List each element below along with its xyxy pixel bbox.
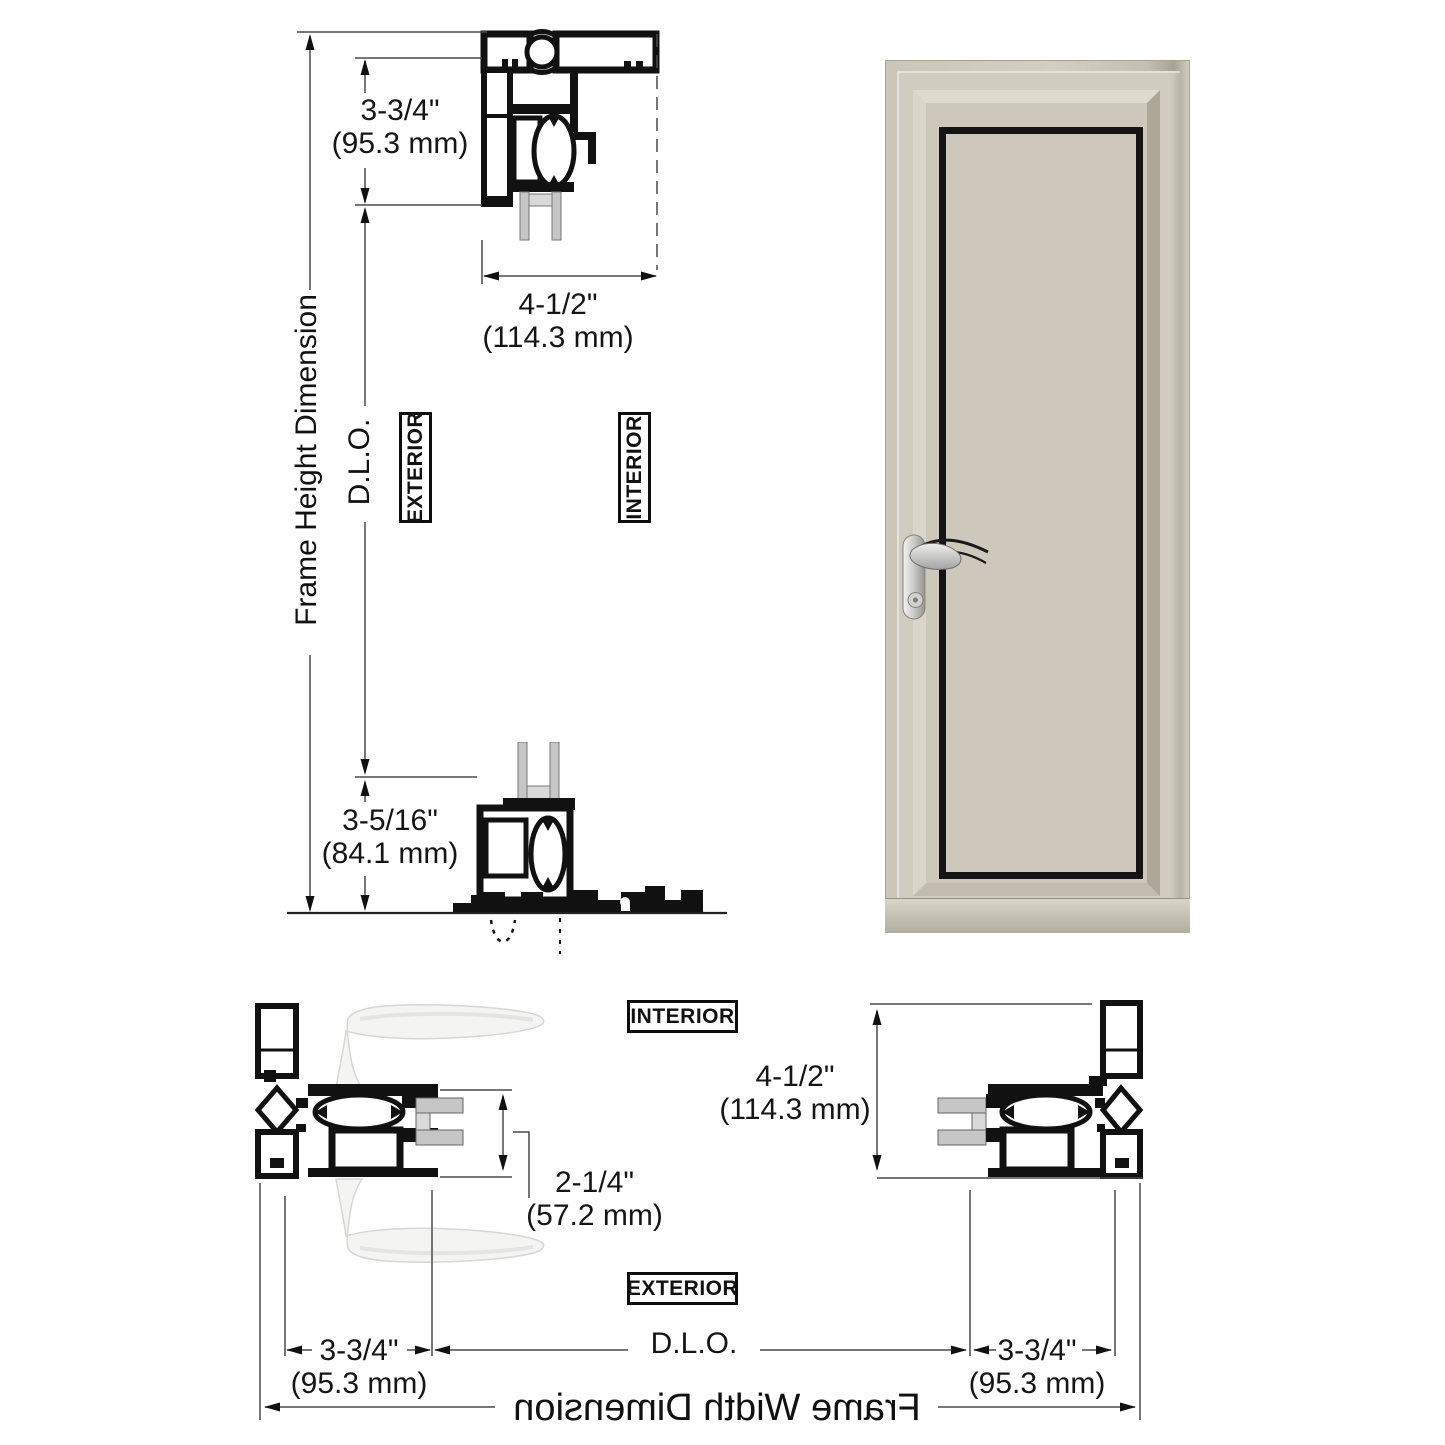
lock-jamb-dimension: 3-3/4" (95.3 mm) [279,1334,439,1400]
dlo-horizontal-label: D.L.O. [634,1327,754,1360]
interior-bottom-badge: INTERIOR [627,1000,738,1033]
hinge-jamb-dimension: 3-3/4" (95.3 mm) [957,1334,1117,1400]
sill-height-dimension: 3-5/16" (84.1 mm) [310,804,470,870]
head-height-dimension: 3-3/4" (95.3 mm) [320,94,480,160]
drawing-sheet: Frame Height Dimension D.L.O. EXTERIOR I… [0,0,1445,1445]
interior-top-badge: INTERIOR [618,412,651,523]
glazing-thickness-dimension: 2-1/4" (57.2 mm) [512,1166,677,1232]
frame-height-label: Frame Height Dimension [290,290,322,630]
exterior-top-badge: EXTERIOR [399,412,432,523]
dimension-lines-overlay [0,0,1445,1445]
frame-depth-side-dimension: 4-1/2" (114.3 mm) [715,1060,875,1126]
frame-depth-top-dimension: 4-1/2" (114.3 mm) [478,288,638,354]
exterior-bottom-badge: EXTERIOR [627,1272,738,1305]
frame-width-label: Frame Width Dimension [497,1387,937,1427]
dlo-vertical-label: D.L.O. [343,407,373,517]
